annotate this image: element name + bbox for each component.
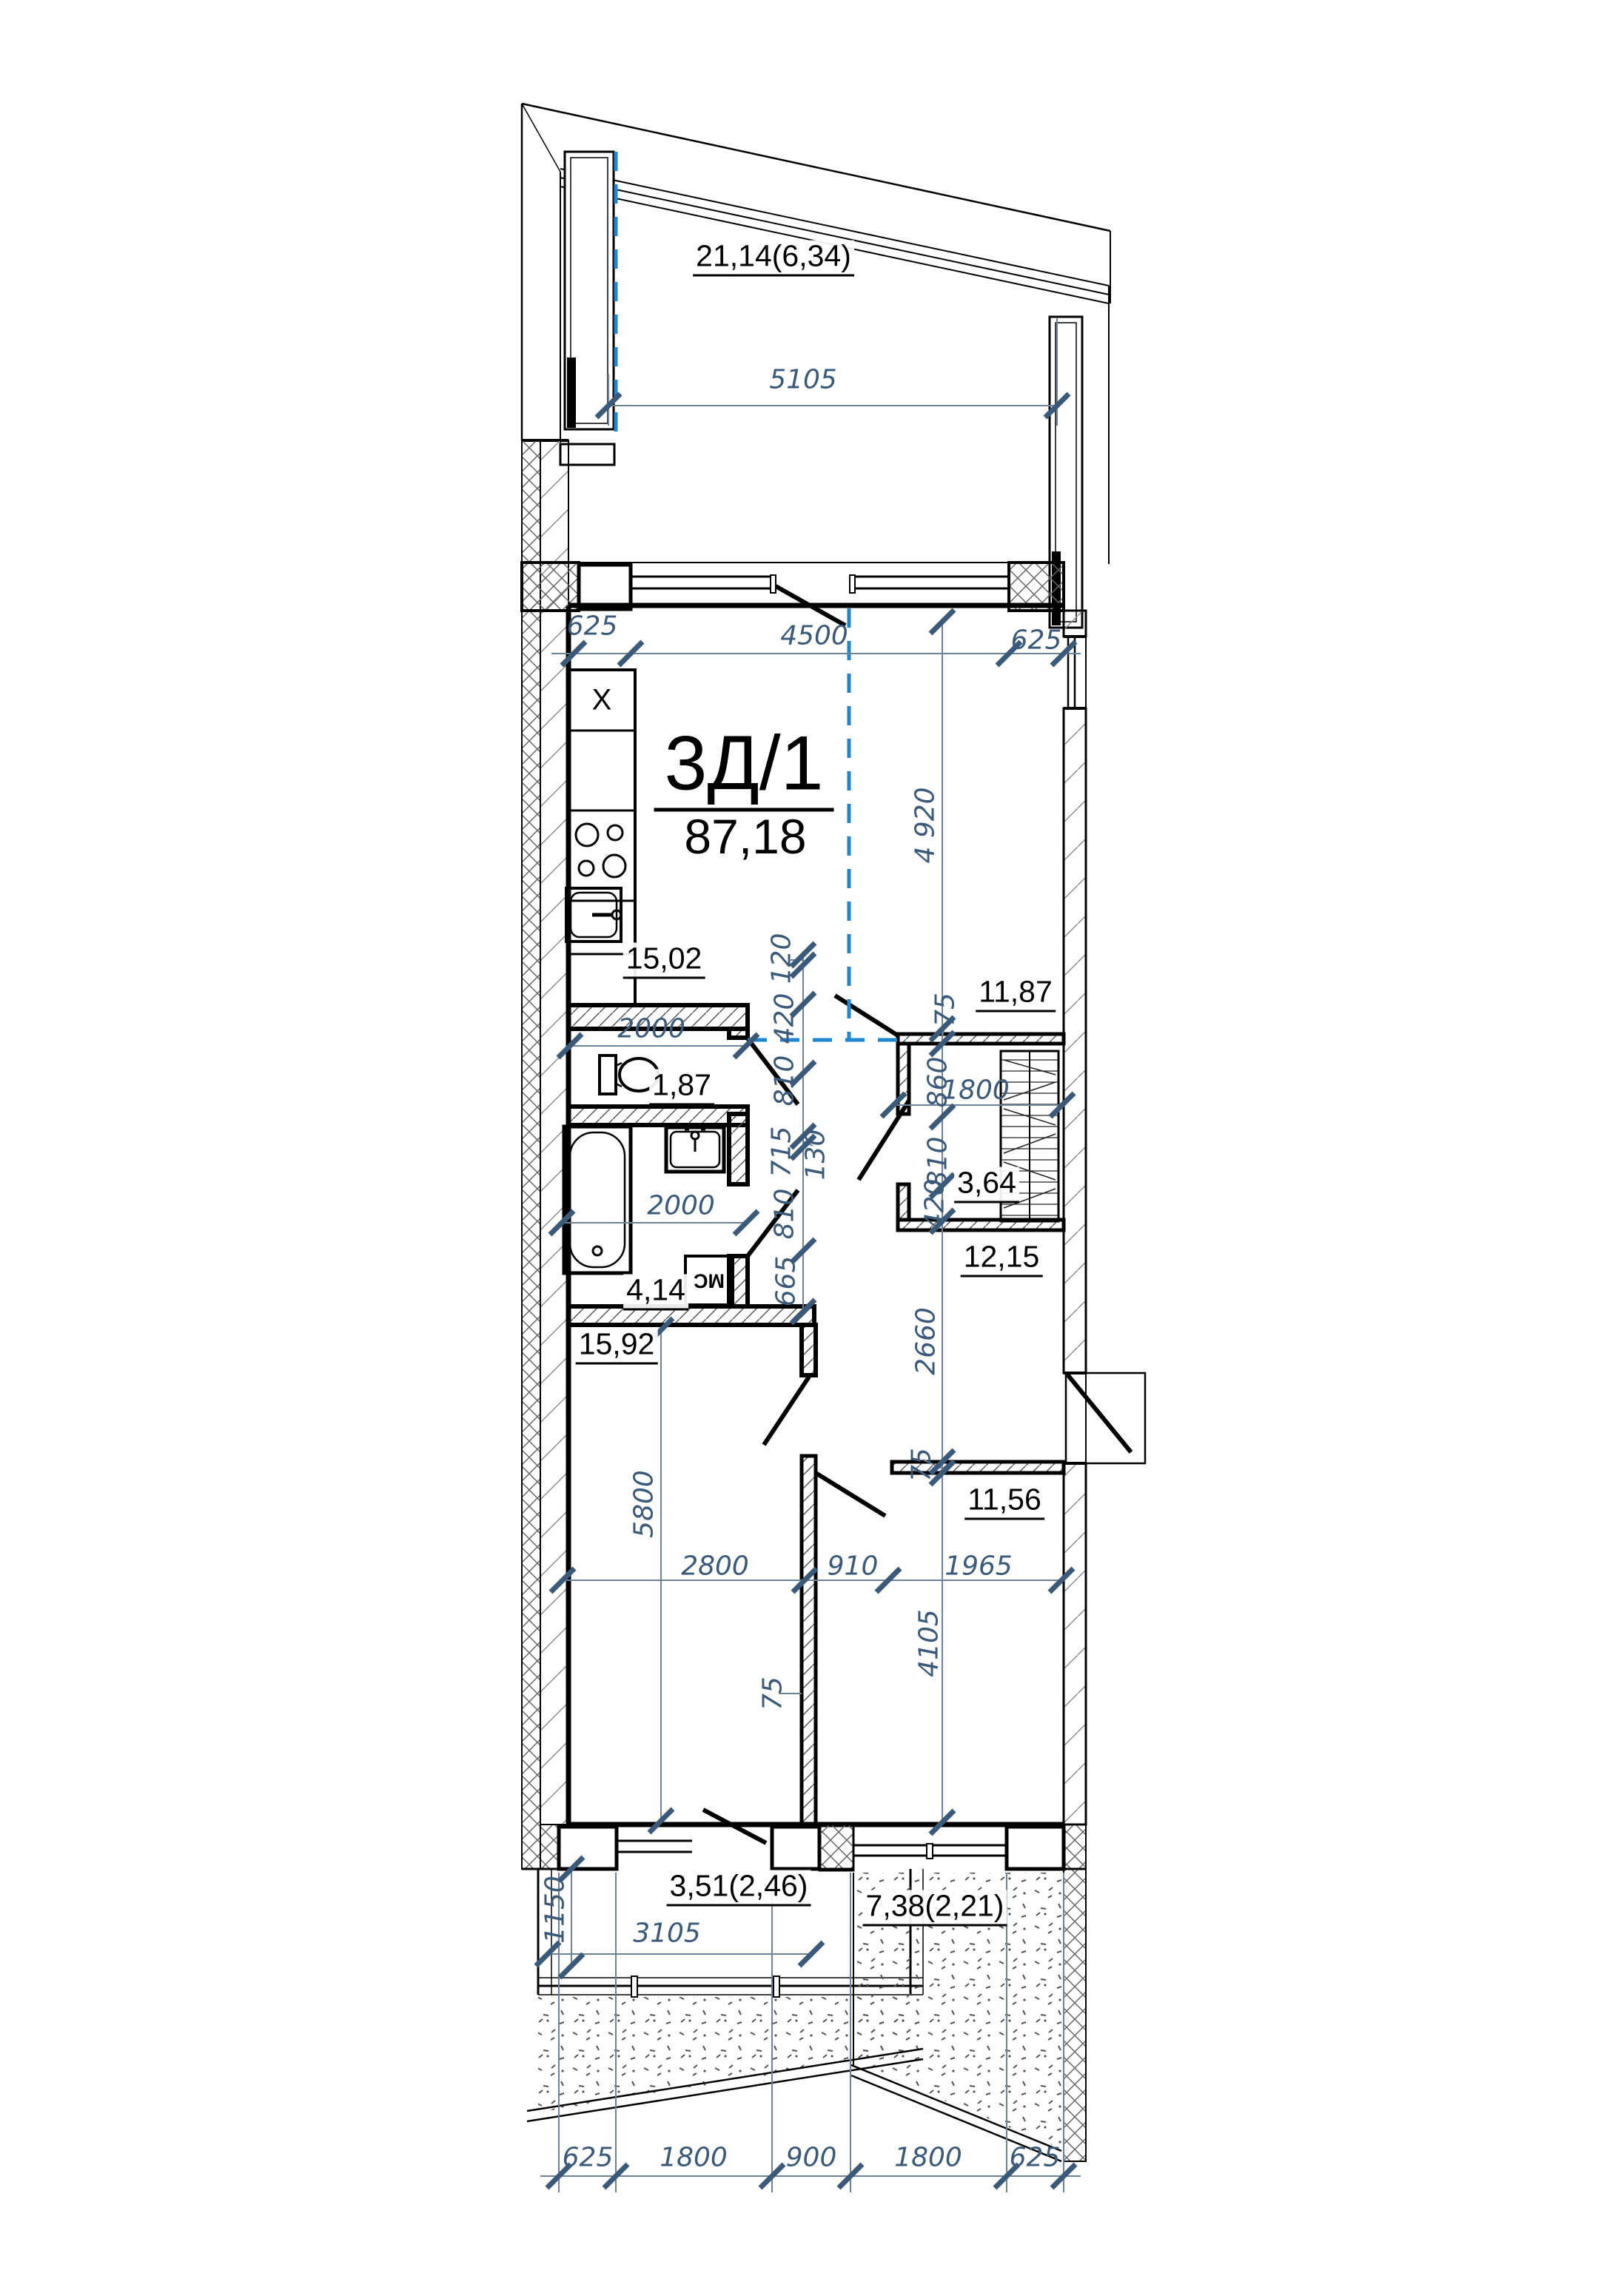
dim-c665: 665	[771, 1256, 802, 1307]
bedroom-bottom-door-leaf	[816, 1473, 885, 1516]
unit-title: 3Д/1	[654, 725, 833, 812]
dim-closet420: 420	[920, 1179, 950, 1230]
dim-wall75-hall: 75	[907, 1448, 937, 1482]
dim-c715: 715	[767, 1127, 797, 1178]
dim-top-left: 625	[567, 611, 618, 642]
dim-closet1800: 1800	[942, 1075, 1010, 1106]
dim-hall-height: 2660	[911, 1307, 942, 1375]
dim-bot-625l: 625	[563, 2143, 614, 2173]
interior-walls	[568, 1005, 1064, 1825]
room-area-label-hall: 12,15	[961, 1241, 1043, 1277]
vent-shaft-icon: X	[592, 684, 612, 717]
bathtub	[564, 1127, 631, 1273]
dim-door910: 910	[828, 1551, 879, 1582]
room-area-label-balcony-top: 21,14(6,34)	[693, 240, 854, 276]
bedroom-right-door-leaf	[835, 996, 898, 1035]
unit-total-area: 87,18	[684, 812, 806, 861]
dim-room-bottom-width: 1965	[944, 1551, 1013, 1582]
dim-c420: 420	[770, 993, 800, 1044]
dim-wall75-rooms: 75	[758, 1676, 788, 1711]
floor-plan-page: 3Д/1 87,18 21,14(6,34) 15,02 11,87 1,87 …	[0, 0, 1624, 2296]
entrance-door-leaf	[1067, 1374, 1131, 1452]
room-area-label-wc: 1,87	[649, 1069, 714, 1105]
dim-balcony-width: 5105	[769, 365, 837, 395]
bedroom-left-door-leaf	[764, 1377, 809, 1445]
dim-room-left-width: 2800	[681, 1551, 749, 1582]
dim-room-bottom-height: 4105	[914, 1609, 944, 1677]
dim-bot-900: 900	[786, 2143, 837, 2173]
dim-bot-1800l: 1800	[660, 2143, 728, 2173]
dim-top-right: 625	[1011, 625, 1062, 656]
dim-bath-width: 2000	[647, 1191, 715, 1221]
dim-top-center: 4500	[780, 621, 848, 651]
room-area-label-balcony-bottom: 3,51(2,46)	[667, 1870, 811, 1906]
dim-c130: 130	[801, 1129, 831, 1181]
dim-bot-625r: 625	[1010, 2143, 1061, 2173]
room-area-label-closet: 3,64	[954, 1167, 1019, 1203]
dim-wall75-closet: 75	[930, 993, 961, 1027]
partition-axes	[616, 152, 898, 1040]
room-area-label-bedroom-bottom: 11,56	[964, 1483, 1044, 1520]
dim-wc-width: 2000	[617, 1014, 685, 1044]
dim-living-height: 4 920	[910, 787, 941, 863]
room-area-label-bedroom-left: 15,92	[576, 1328, 658, 1364]
dim-c810b: 810	[770, 1189, 800, 1240]
dim-balc-b-width: 3105	[633, 1919, 701, 1949]
dim-c120: 120	[767, 933, 797, 984]
dim-room-left-height: 5800	[629, 1470, 660, 1538]
washing-machine-label: МС	[694, 1269, 725, 1292]
room-area-label-kitchen: 15,02	[623, 942, 705, 979]
dim-bot-1800r: 1800	[894, 2143, 962, 2173]
room-area-label-bedroom-right: 11,87	[976, 976, 1056, 1012]
room-area-label-terrace: 7,38(2,21)	[863, 1890, 1007, 1926]
room-area-label-bathroom: 4,14	[623, 1274, 688, 1310]
dim-balc-b-depth: 1150	[540, 1876, 571, 1944]
dim-c810a: 810	[770, 1055, 800, 1107]
